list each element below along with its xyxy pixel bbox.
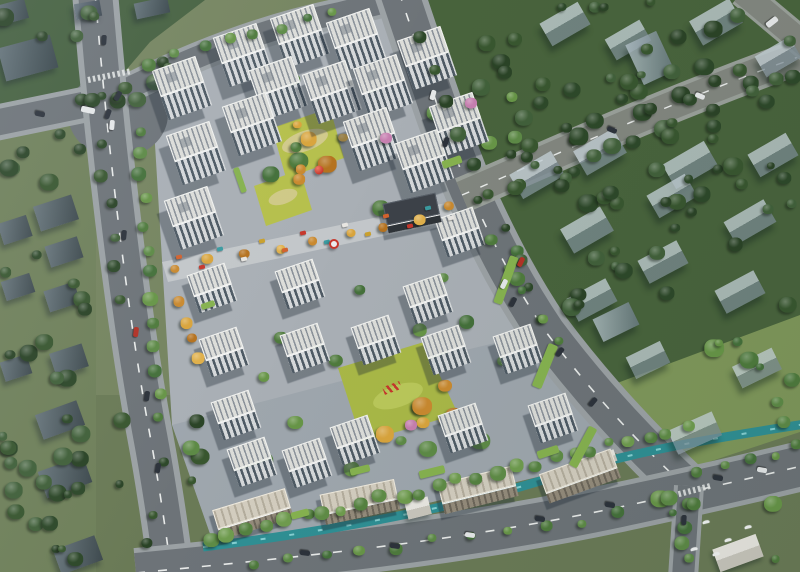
building-tower	[493, 324, 544, 375]
tree	[708, 120, 722, 133]
tree	[684, 175, 694, 184]
tree	[756, 363, 764, 370]
car	[765, 16, 779, 29]
car	[535, 516, 546, 523]
tree	[346, 229, 355, 237]
roof-garden-strip	[418, 465, 445, 479]
tree	[449, 473, 461, 484]
tree	[328, 8, 337, 16]
tree	[521, 152, 533, 163]
tree	[354, 285, 365, 295]
tree	[478, 36, 495, 51]
tree	[691, 467, 703, 478]
tree	[19, 460, 37, 477]
building-tower	[270, 4, 330, 68]
tree	[115, 480, 124, 488]
market-awning	[300, 230, 307, 235]
tree	[106, 199, 117, 209]
tree	[249, 561, 259, 570]
tree	[35, 334, 53, 350]
tree	[778, 172, 791, 184]
tree	[64, 491, 72, 498]
tree	[683, 421, 695, 432]
tree	[182, 440, 199, 455]
tree	[138, 222, 149, 232]
tree	[554, 166, 563, 174]
tree	[294, 174, 306, 184]
tree	[7, 504, 24, 519]
tree	[71, 451, 89, 467]
car	[109, 120, 115, 130]
tree	[4, 457, 17, 469]
tree	[693, 187, 710, 202]
tree	[730, 8, 746, 22]
tree	[438, 379, 452, 392]
tree	[778, 296, 796, 312]
car	[390, 543, 401, 549]
tree	[704, 21, 723, 38]
bird	[702, 520, 710, 525]
tree	[303, 13, 313, 22]
context-building-white	[712, 534, 763, 572]
tree	[147, 318, 159, 329]
tree	[606, 73, 616, 82]
tree	[169, 48, 179, 57]
tree	[771, 555, 780, 563]
tree	[31, 250, 41, 259]
tree	[746, 85, 758, 96]
tree	[637, 71, 645, 79]
tree	[68, 552, 83, 566]
tree	[644, 432, 657, 444]
tree	[218, 528, 234, 542]
car	[429, 90, 437, 101]
tree	[467, 158, 481, 171]
tree	[538, 314, 548, 323]
building-tower	[343, 107, 403, 171]
context-building-dark	[33, 194, 79, 231]
car	[35, 111, 46, 118]
context-building-gable	[637, 240, 688, 284]
tree	[147, 341, 160, 353]
tree	[427, 534, 436, 542]
tree	[708, 75, 721, 87]
tree	[0, 267, 12, 277]
tree	[554, 336, 563, 344]
tree	[772, 452, 781, 460]
context-building-dark	[44, 236, 83, 267]
tree	[786, 199, 797, 209]
tree	[506, 150, 515, 158]
car	[121, 230, 127, 240]
tree	[744, 453, 757, 465]
tree	[74, 143, 86, 154]
tree	[670, 30, 687, 45]
tree	[277, 24, 288, 34]
tree	[671, 224, 680, 232]
tree	[170, 265, 179, 273]
tree	[0, 432, 8, 441]
tree	[128, 92, 146, 108]
building-tower	[166, 121, 226, 185]
tree	[588, 251, 604, 266]
tree	[70, 30, 83, 42]
tree	[296, 164, 306, 173]
car	[300, 550, 311, 556]
tree	[419, 441, 437, 457]
tree	[131, 167, 146, 181]
tree	[570, 128, 589, 145]
tree	[759, 94, 775, 109]
car	[509, 296, 518, 307]
tree	[5, 482, 23, 499]
tree	[143, 265, 157, 277]
tree	[450, 127, 466, 141]
tree	[136, 127, 146, 136]
red-ring-sculpture	[329, 239, 339, 249]
tree	[329, 354, 343, 367]
tree	[199, 40, 212, 51]
building-tower	[528, 393, 579, 444]
tree	[71, 482, 85, 494]
tree	[614, 263, 632, 279]
tree	[141, 192, 152, 202]
tree	[646, 0, 655, 5]
building-tower	[275, 259, 326, 310]
car	[133, 327, 139, 338]
tree	[644, 102, 658, 115]
tree	[762, 204, 773, 214]
tree	[290, 142, 301, 152]
tree	[508, 182, 523, 196]
tree	[659, 429, 671, 440]
tree	[188, 477, 196, 484]
tree	[413, 214, 426, 225]
building-tower	[227, 437, 278, 488]
tree	[354, 498, 368, 511]
tree	[134, 147, 148, 159]
tree	[694, 58, 713, 76]
tree	[686, 497, 701, 510]
market-awning	[217, 246, 224, 251]
tree	[600, 3, 609, 11]
tree	[147, 365, 161, 378]
tree	[414, 31, 427, 43]
context-building-gable	[668, 411, 722, 454]
tree	[498, 66, 512, 79]
tree	[508, 33, 522, 46]
tree	[174, 296, 185, 306]
tree	[713, 164, 723, 173]
tree	[417, 417, 430, 429]
tree	[508, 131, 522, 144]
market-awning	[258, 238, 265, 243]
building-tower	[330, 415, 381, 466]
tree	[4, 350, 15, 360]
tree	[579, 195, 598, 213]
tree	[724, 157, 743, 175]
tree	[42, 516, 58, 530]
car	[605, 502, 616, 509]
tree	[149, 511, 158, 519]
building-tower	[164, 186, 224, 250]
red-sphere-sculpture	[315, 166, 324, 175]
tree	[483, 190, 494, 200]
tree	[533, 96, 548, 110]
aerial-render	[0, 0, 800, 572]
tree	[617, 93, 629, 103]
tree	[300, 132, 317, 147]
tree	[706, 104, 720, 116]
tree	[353, 545, 365, 556]
tree	[663, 64, 680, 80]
building-tower	[280, 323, 331, 374]
tree	[412, 397, 432, 415]
tree	[0, 8, 14, 26]
tree	[648, 162, 665, 178]
tree	[769, 73, 784, 86]
market-awning	[365, 232, 372, 237]
tree	[78, 303, 92, 316]
tree	[202, 253, 213, 263]
tree	[0, 160, 19, 177]
tree	[586, 113, 604, 129]
tree	[412, 489, 424, 500]
tree	[154, 388, 166, 399]
tree	[262, 166, 279, 181]
tree	[535, 78, 550, 92]
tree	[283, 553, 293, 562]
tree	[501, 224, 510, 233]
tree	[238, 523, 253, 536]
tree	[28, 517, 43, 531]
tree	[142, 538, 153, 548]
tree	[732, 337, 743, 347]
tree	[260, 520, 274, 532]
tree	[40, 174, 59, 191]
building-tower	[199, 327, 250, 378]
tree	[1, 441, 17, 455]
context-building-dark	[0, 215, 33, 245]
tree	[674, 536, 689, 550]
context-building-gable	[714, 270, 765, 314]
tree	[335, 506, 346, 516]
context-building-gable	[560, 206, 614, 253]
tree	[465, 98, 477, 109]
tree	[93, 169, 107, 182]
tree	[143, 246, 154, 256]
tree	[113, 413, 130, 428]
red-canopy-sculpture	[382, 381, 402, 395]
tree	[785, 70, 800, 84]
tree	[17, 146, 30, 158]
building-tower	[351, 315, 402, 366]
tree	[189, 415, 204, 429]
market-awning	[240, 256, 247, 261]
tree	[604, 438, 613, 446]
tree	[554, 179, 569, 193]
tree	[439, 95, 453, 107]
tree	[531, 161, 540, 169]
tree	[784, 35, 796, 46]
tree	[603, 138, 621, 154]
car	[588, 397, 598, 408]
tree	[50, 372, 64, 385]
tree	[661, 128, 679, 144]
tree	[610, 247, 620, 256]
tree	[621, 436, 634, 448]
tree	[469, 473, 483, 485]
tree	[684, 554, 694, 563]
car	[155, 463, 162, 474]
car	[713, 475, 724, 482]
tree	[153, 413, 163, 422]
market-awning	[341, 222, 348, 227]
tree	[473, 196, 482, 204]
tree	[72, 425, 91, 442]
tree	[518, 287, 526, 294]
tree	[308, 237, 318, 246]
tree	[19, 345, 38, 362]
tree	[586, 149, 601, 163]
tree	[573, 300, 584, 310]
tree	[602, 185, 618, 200]
tree	[444, 202, 454, 211]
tree	[564, 82, 581, 97]
tree	[53, 448, 72, 465]
tree	[791, 440, 800, 449]
tree	[620, 74, 638, 90]
tree	[641, 44, 653, 55]
tree	[784, 373, 800, 387]
tree	[503, 527, 512, 536]
tree	[649, 246, 665, 260]
tree	[258, 372, 269, 382]
tree	[293, 121, 301, 128]
tree	[97, 139, 107, 148]
tree	[660, 286, 675, 300]
tree	[558, 3, 567, 11]
car	[101, 35, 107, 45]
tree	[405, 420, 417, 431]
roof-garden-strip	[233, 167, 247, 194]
bird	[744, 525, 752, 530]
market-awning	[282, 248, 289, 253]
tree	[142, 58, 156, 71]
tree	[708, 134, 719, 144]
tree	[192, 353, 205, 364]
tree	[115, 295, 126, 305]
tree	[772, 397, 783, 407]
tree	[142, 292, 158, 306]
tree	[375, 426, 393, 442]
car	[681, 515, 687, 525]
tree	[660, 197, 671, 207]
tree	[733, 64, 747, 77]
market-awning	[175, 255, 182, 260]
tree	[397, 490, 413, 504]
context-building-dark	[0, 35, 58, 82]
tree	[626, 135, 641, 148]
car	[144, 391, 150, 402]
context-building-gable	[626, 341, 671, 379]
context-building-gable	[747, 133, 798, 178]
context-building-dark	[134, 0, 171, 19]
tree	[666, 118, 677, 128]
tree	[378, 223, 387, 231]
tree	[314, 506, 329, 520]
tree	[728, 238, 743, 251]
tree	[490, 466, 506, 480]
building-tower	[421, 325, 472, 376]
building-tower	[397, 26, 457, 90]
building-tower	[282, 438, 333, 489]
tree	[371, 489, 386, 503]
tree	[180, 317, 193, 329]
tree	[736, 178, 748, 189]
tree	[55, 129, 66, 139]
tree	[529, 461, 542, 473]
buildings-and-landscape-layer	[0, 0, 800, 572]
tree	[687, 208, 697, 217]
tree	[225, 33, 237, 44]
building-tower	[435, 207, 486, 258]
tree	[187, 334, 197, 343]
tree	[506, 92, 517, 102]
tree	[764, 496, 782, 512]
tree	[578, 519, 587, 527]
tree	[661, 490, 678, 505]
tree	[68, 278, 80, 289]
tree	[111, 234, 120, 243]
bird	[690, 547, 698, 552]
car	[104, 108, 112, 119]
building-tower	[211, 390, 262, 441]
car	[757, 467, 768, 474]
tree	[288, 416, 303, 430]
tree	[721, 461, 730, 469]
tree	[432, 478, 447, 491]
tree	[380, 133, 392, 144]
tree	[84, 93, 100, 107]
tree	[108, 260, 121, 272]
tree	[459, 315, 475, 329]
tree	[322, 550, 332, 559]
tree	[396, 436, 407, 446]
tree	[515, 109, 533, 125]
tree	[509, 459, 524, 472]
tree	[777, 416, 790, 428]
tree	[669, 509, 677, 517]
tree	[90, 12, 100, 21]
tree	[472, 79, 490, 95]
tree	[485, 234, 498, 245]
